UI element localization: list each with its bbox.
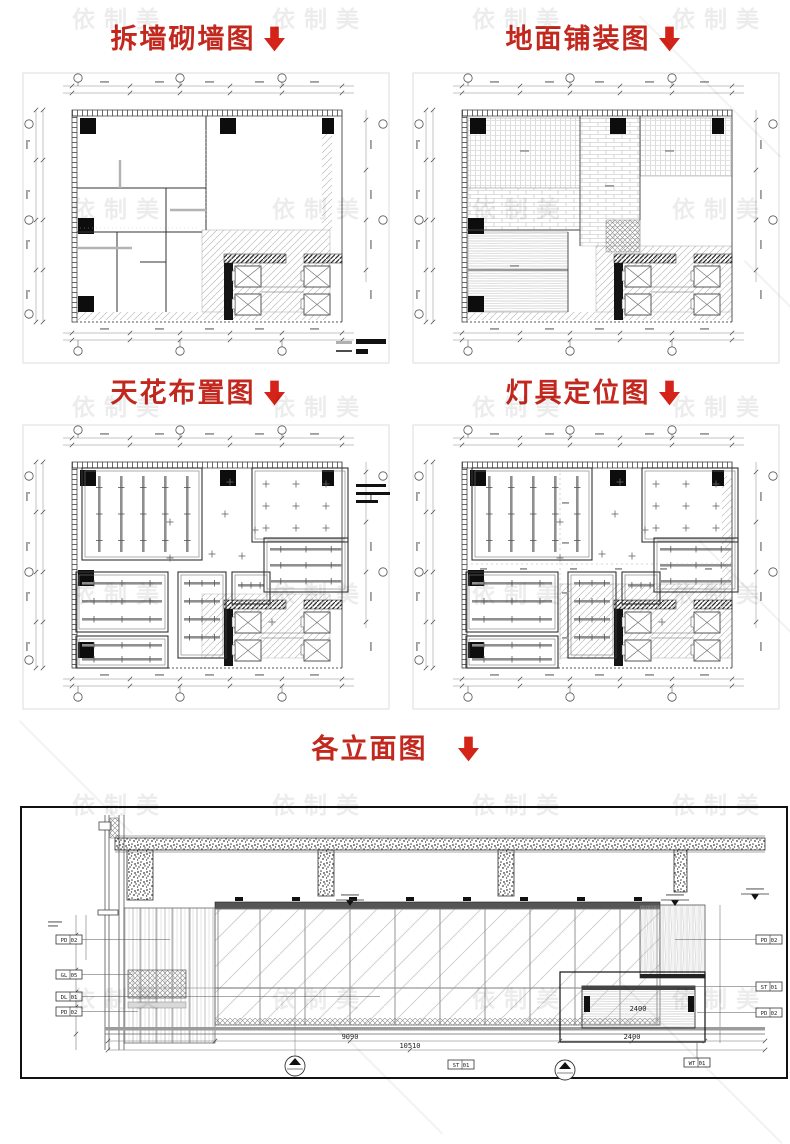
title-text-paving: 地面铺装图	[506, 22, 651, 56]
section-title-ceiling: 天花布置图	[0, 376, 395, 410]
title-text-elevation: 各立面图	[312, 732, 428, 766]
demolition-plan-drawing	[20, 70, 392, 366]
section-title-lighting: 灯具定位图	[395, 376, 790, 410]
dim-text: 2400	[630, 1005, 647, 1013]
elevation: 24009090240010510PD 02GL 05DL 01PD 02PD …	[21, 807, 787, 1080]
down-arrow-icon	[659, 26, 680, 52]
title-text-lighting: 灯具定位图	[506, 376, 651, 410]
section-title-demolition: 拆墙砌墙图	[0, 22, 395, 56]
elevation-drawing: 24009090240010510PD 02GL 05DL 01PD 02PD …	[20, 798, 790, 1087]
paving-plan-drawing	[410, 70, 782, 366]
dim-text: PD 02	[61, 1010, 78, 1016]
down-arrow-icon	[659, 380, 680, 406]
dim-text: DL 01	[61, 995, 78, 1001]
plan-ceiling	[23, 425, 390, 709]
section-title-elevation: 各立面图	[0, 732, 790, 766]
lighting-plan-drawing	[410, 422, 782, 712]
dim-text: ST 01	[761, 985, 778, 991]
dim-text: PD 02	[61, 938, 78, 944]
title-text-ceiling: 天花布置图	[111, 376, 256, 410]
title-row-2: 天花布置图 灯具定位图	[0, 376, 790, 410]
section-title-paving: 地面铺装图	[395, 22, 790, 56]
dim-text: 10510	[399, 1042, 420, 1050]
dim-text: ST 01	[453, 1063, 470, 1069]
dim-text: WT 01	[689, 1061, 706, 1067]
dim-text: 9090	[342, 1033, 359, 1041]
plan-demolition	[23, 73, 389, 363]
dim-text: GL 05	[61, 973, 78, 979]
down-arrow-icon	[264, 26, 285, 52]
title-row-1: 拆墙砌墙图 地面铺装图	[0, 22, 790, 56]
down-arrow-icon	[264, 380, 285, 406]
ceiling-plan-drawing	[20, 422, 392, 712]
dim-text: PD 02	[761, 1011, 778, 1017]
title-row-3: 各立面图	[0, 732, 790, 766]
title-text-demolition: 拆墙砌墙图	[111, 22, 256, 56]
plan-lighting	[413, 425, 779, 709]
plan-paving	[413, 73, 779, 363]
dim-text: PD 02	[761, 938, 778, 944]
dim-text: 2400	[624, 1033, 641, 1041]
down-arrow-icon	[458, 736, 479, 762]
